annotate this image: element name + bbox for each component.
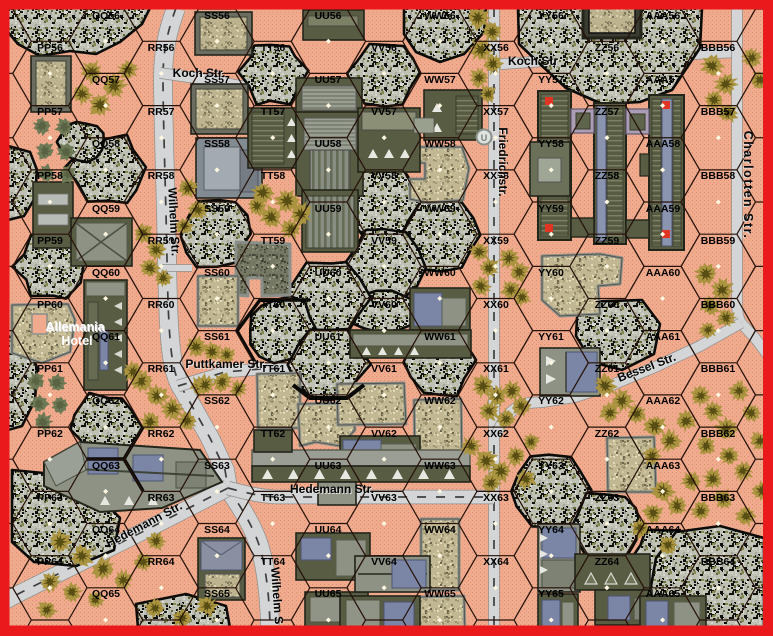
svg-text:QQ60: QQ60 xyxy=(92,267,120,279)
svg-text:PP60: PP60 xyxy=(37,299,63,311)
svg-text:ZZ59: ZZ59 xyxy=(595,235,620,247)
svg-text:PP56: PP56 xyxy=(37,42,63,54)
svg-text:UU61: UU61 xyxy=(315,331,342,343)
svg-text:UU62: UU62 xyxy=(315,395,342,407)
svg-text:QQ65: QQ65 xyxy=(92,588,120,600)
svg-text:YY61: YY61 xyxy=(538,331,564,343)
svg-text:Hotel: Hotel xyxy=(61,334,92,348)
svg-text:ZZ56: ZZ56 xyxy=(595,42,620,54)
svg-text:WW61: WW61 xyxy=(424,331,456,343)
svg-text:RR56: RR56 xyxy=(148,42,175,54)
svg-text:VV56: VV56 xyxy=(371,42,397,54)
svg-text:PP62: PP62 xyxy=(37,428,63,440)
svg-text:WW63: WW63 xyxy=(424,460,456,472)
svg-text:YY58: YY58 xyxy=(538,138,564,150)
svg-text:Friedrichstr.: Friedrichstr. xyxy=(496,127,510,196)
svg-text:SS59: SS59 xyxy=(204,203,230,215)
svg-text:TT57: TT57 xyxy=(261,106,286,118)
svg-text:YY62: YY62 xyxy=(538,395,564,407)
svg-text:YY64: YY64 xyxy=(538,524,564,536)
svg-text:BBB63: BBB63 xyxy=(701,492,736,504)
svg-text:SS65: SS65 xyxy=(204,588,230,600)
svg-text:AAA60: AAA60 xyxy=(646,267,681,279)
svg-text:TT60: TT60 xyxy=(261,299,286,311)
svg-text:RR61: RR61 xyxy=(148,363,175,375)
svg-text:Hedemann Str.: Hedemann Str. xyxy=(290,482,374,496)
svg-text:WW56: WW56 xyxy=(424,10,456,22)
svg-text:U: U xyxy=(481,133,488,143)
svg-text:RR60: RR60 xyxy=(148,299,175,311)
svg-text:QQ62: QQ62 xyxy=(92,395,120,407)
svg-text:WW64: WW64 xyxy=(424,524,456,536)
svg-text:BBB61: BBB61 xyxy=(701,363,736,375)
svg-text:YY60: YY60 xyxy=(538,267,564,279)
svg-text:XX59: XX59 xyxy=(483,235,509,247)
svg-text:RR57: RR57 xyxy=(148,106,175,118)
svg-text:WW62: WW62 xyxy=(424,395,456,407)
svg-text:XX64: XX64 xyxy=(483,556,509,568)
svg-text:SS60: SS60 xyxy=(204,267,230,279)
svg-text:SS61: SS61 xyxy=(204,331,230,343)
svg-text:Koch Str.: Koch Str. xyxy=(173,66,226,80)
svg-text:AAA58: AAA58 xyxy=(646,138,681,150)
svg-text:AAA64: AAA64 xyxy=(646,524,681,536)
svg-text:BBB60: BBB60 xyxy=(701,299,736,311)
svg-text:TT63: TT63 xyxy=(261,492,286,504)
svg-text:VV58: VV58 xyxy=(371,170,397,182)
svg-text:YY56: YY56 xyxy=(538,10,564,22)
svg-text:ZZ62: ZZ62 xyxy=(595,428,620,440)
svg-text:PP59: PP59 xyxy=(37,235,63,247)
svg-text:SS62: SS62 xyxy=(204,395,230,407)
svg-text:UU56: UU56 xyxy=(315,10,342,22)
svg-text:VV57: VV57 xyxy=(371,106,397,118)
svg-text:Charlotten Str.: Charlotten Str. xyxy=(741,131,755,240)
svg-text:RR62: RR62 xyxy=(148,428,175,440)
svg-text:UU57: UU57 xyxy=(315,74,342,86)
svg-text:PP64: PP64 xyxy=(37,556,63,568)
svg-text:UU63: UU63 xyxy=(315,460,342,472)
svg-text:XX63: XX63 xyxy=(483,492,509,504)
svg-text:AAA57: AAA57 xyxy=(646,74,681,86)
svg-text:WW59: WW59 xyxy=(424,203,456,215)
svg-text:WW57: WW57 xyxy=(424,74,456,86)
svg-text:Allemania: Allemania xyxy=(45,320,105,334)
svg-text:QQ56: QQ56 xyxy=(92,10,120,22)
svg-text:RR64: RR64 xyxy=(148,556,175,568)
svg-text:AAA56: AAA56 xyxy=(646,10,681,22)
svg-text:ZZ63: ZZ63 xyxy=(595,492,620,504)
svg-text:VV60: VV60 xyxy=(371,299,397,311)
svg-text:VV62: VV62 xyxy=(371,428,397,440)
svg-text:TT62: TT62 xyxy=(261,428,286,440)
svg-text:YY57: YY57 xyxy=(538,74,564,86)
svg-text:TT59: TT59 xyxy=(261,235,286,247)
svg-text:ZZ58: ZZ58 xyxy=(595,170,620,182)
svg-text:QQ59: QQ59 xyxy=(92,203,120,215)
svg-text:WW58: WW58 xyxy=(424,138,456,150)
svg-text:WW65: WW65 xyxy=(424,588,456,600)
svg-text:ZZ60: ZZ60 xyxy=(595,299,620,311)
svg-text:UU64: UU64 xyxy=(315,524,342,536)
svg-text:ZZ57: ZZ57 xyxy=(595,106,620,118)
svg-text:WW60: WW60 xyxy=(424,267,456,279)
svg-text:YY63: YY63 xyxy=(538,460,564,472)
svg-text:SS64: SS64 xyxy=(204,524,230,536)
svg-text:VV59: VV59 xyxy=(371,235,397,247)
svg-text:BBB56: BBB56 xyxy=(701,42,736,54)
svg-text:UU60: UU60 xyxy=(315,267,342,279)
svg-text:UU59: UU59 xyxy=(315,203,342,215)
svg-text:AAA62: AAA62 xyxy=(646,395,681,407)
svg-text:BBB57: BBB57 xyxy=(701,106,736,118)
svg-text:AAA61: AAA61 xyxy=(646,331,681,343)
svg-text:VV61: VV61 xyxy=(371,363,397,375)
svg-text:QQ63: QQ63 xyxy=(92,460,120,472)
svg-text:ZZ64: ZZ64 xyxy=(595,556,620,568)
svg-text:SS63: SS63 xyxy=(204,460,230,472)
svg-text:XX56: XX56 xyxy=(483,42,509,54)
svg-text:Puttkamer Str.: Puttkamer Str. xyxy=(185,357,266,371)
svg-text:Koch Str: Koch Str xyxy=(508,54,558,68)
svg-text:SS58: SS58 xyxy=(204,138,230,150)
svg-text:XX60: XX60 xyxy=(483,299,509,311)
svg-text:SS56: SS56 xyxy=(204,10,230,22)
svg-text:QQ57: QQ57 xyxy=(92,74,120,86)
svg-text:BBB64: BBB64 xyxy=(701,556,736,568)
svg-text:BBB59: BBB59 xyxy=(701,235,736,247)
svg-text:XX62: XX62 xyxy=(483,428,509,440)
svg-text:UU65: UU65 xyxy=(315,588,342,600)
svg-text:BBB62: BBB62 xyxy=(701,428,736,440)
svg-text:UU58: UU58 xyxy=(315,138,342,150)
svg-text:PP61: PP61 xyxy=(37,363,63,375)
svg-text:XX61: XX61 xyxy=(483,363,509,375)
svg-text:XX57: XX57 xyxy=(483,106,509,118)
svg-text:AAA63: AAA63 xyxy=(646,460,681,472)
svg-text:AAA65: AAA65 xyxy=(646,588,681,600)
svg-text:BBB58: BBB58 xyxy=(701,170,736,182)
svg-text:TT58: TT58 xyxy=(261,170,286,182)
svg-text:QQ58: QQ58 xyxy=(92,138,120,150)
svg-text:VV63: VV63 xyxy=(371,492,397,504)
svg-text:YY65: YY65 xyxy=(538,588,564,600)
svg-text:VV64: VV64 xyxy=(371,556,397,568)
svg-text:YY59: YY59 xyxy=(538,203,564,215)
svg-text:TT56: TT56 xyxy=(261,42,286,54)
svg-text:PP57: PP57 xyxy=(37,106,63,118)
svg-text:AAA59: AAA59 xyxy=(646,203,681,215)
svg-text:PP63: PP63 xyxy=(37,492,63,504)
svg-text:RR58: RR58 xyxy=(148,170,175,182)
svg-text:PP58: PP58 xyxy=(37,170,63,182)
